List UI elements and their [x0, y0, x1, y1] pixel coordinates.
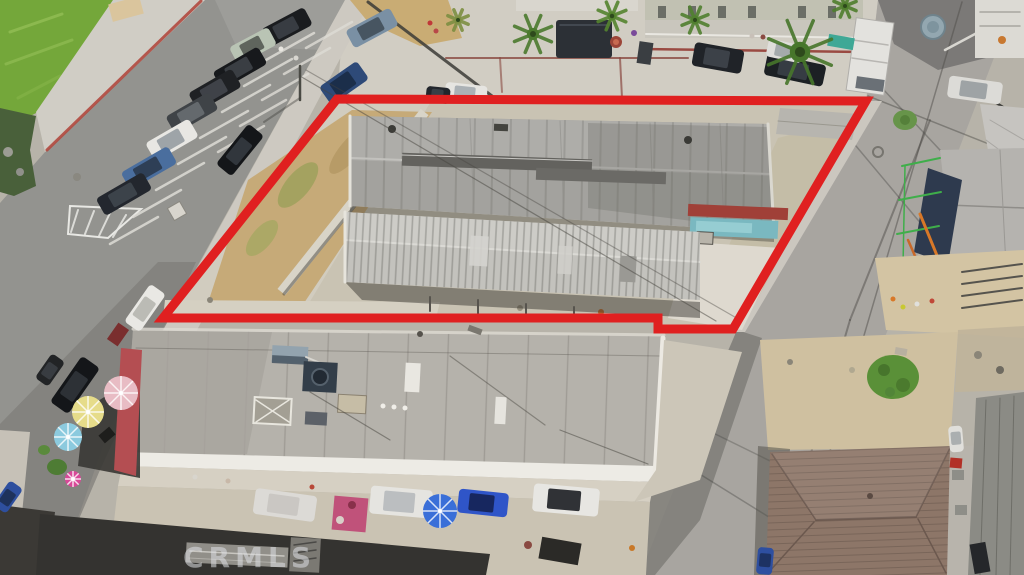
beach-umbrella	[423, 494, 457, 528]
manhole	[73, 173, 81, 181]
pool-inner	[927, 21, 939, 33]
patio-umbrella-magenta	[65, 471, 81, 487]
yard-junk	[787, 359, 793, 365]
aerial-photo-canvas	[0, 0, 1024, 575]
skylight-panel	[469, 236, 489, 267]
roof-dot	[381, 404, 386, 409]
apartment-window	[718, 6, 726, 18]
patio-umbrella-yellow	[72, 396, 104, 428]
pedestrian	[294, 56, 299, 61]
orange-equipment	[998, 36, 1006, 44]
white-box	[404, 363, 420, 393]
sandy-ground-scaffold	[875, 250, 1024, 338]
planter-pot-inner	[613, 39, 619, 45]
rock	[16, 168, 24, 176]
patio-umbrella-pink	[104, 376, 138, 410]
parked-car	[756, 547, 774, 575]
roof-dot	[403, 406, 408, 411]
junk-yard	[955, 326, 1024, 392]
roof-unit	[684, 136, 692, 144]
apartment-window	[798, 6, 806, 18]
patio-umbrella-blue	[54, 423, 82, 451]
pedestrian	[434, 29, 439, 34]
pedestrian	[631, 30, 637, 36]
equipment-dot	[629, 545, 635, 551]
red-object	[950, 457, 963, 468]
small-tree-shade	[900, 115, 910, 125]
pedestrian	[193, 475, 198, 480]
sidewalk-plant	[38, 445, 50, 455]
junk	[996, 366, 1004, 374]
pedestrian	[428, 21, 433, 26]
sidewalk-plant	[47, 459, 67, 475]
leafy-tree-shade	[885, 387, 895, 397]
apartment-window	[658, 6, 666, 18]
skylight-panel	[557, 246, 572, 275]
junk	[974, 351, 982, 359]
parked-car	[948, 425, 964, 452]
pedestrian	[310, 485, 315, 490]
roof-edge-unit	[417, 331, 423, 337]
aerial-photo: CRMLS	[0, 0, 1024, 575]
vent-fan	[312, 369, 328, 385]
sandy-yard	[760, 332, 958, 450]
white-box	[494, 397, 506, 425]
equipment-dot	[524, 541, 532, 549]
pedestrian	[226, 479, 231, 484]
utility-structure	[975, 0, 1024, 58]
roof-vent	[867, 493, 873, 499]
junk-pile-dot	[336, 516, 344, 524]
small-roofs-top	[516, 0, 638, 11]
roof-dot	[392, 405, 397, 410]
worker	[891, 297, 896, 302]
pedestrian	[761, 35, 766, 40]
roof-unit	[494, 124, 508, 131]
leafy-tree-shade	[896, 378, 910, 392]
debris	[207, 297, 213, 303]
leafy-tree-shade	[878, 364, 890, 376]
apartment-window	[748, 6, 756, 18]
pedestrian	[750, 34, 755, 39]
rock	[3, 147, 13, 157]
pedestrian	[279, 47, 284, 52]
worker	[930, 299, 935, 304]
junk-pile	[332, 496, 369, 533]
worker	[901, 305, 906, 310]
ac-unit	[952, 470, 964, 480]
junk-pile-dot	[348, 501, 356, 509]
parked-pickup	[532, 483, 600, 517]
worker	[915, 302, 920, 307]
yard-junk	[849, 367, 855, 373]
ac-unit	[955, 505, 967, 515]
roof-equipment	[305, 411, 328, 425]
